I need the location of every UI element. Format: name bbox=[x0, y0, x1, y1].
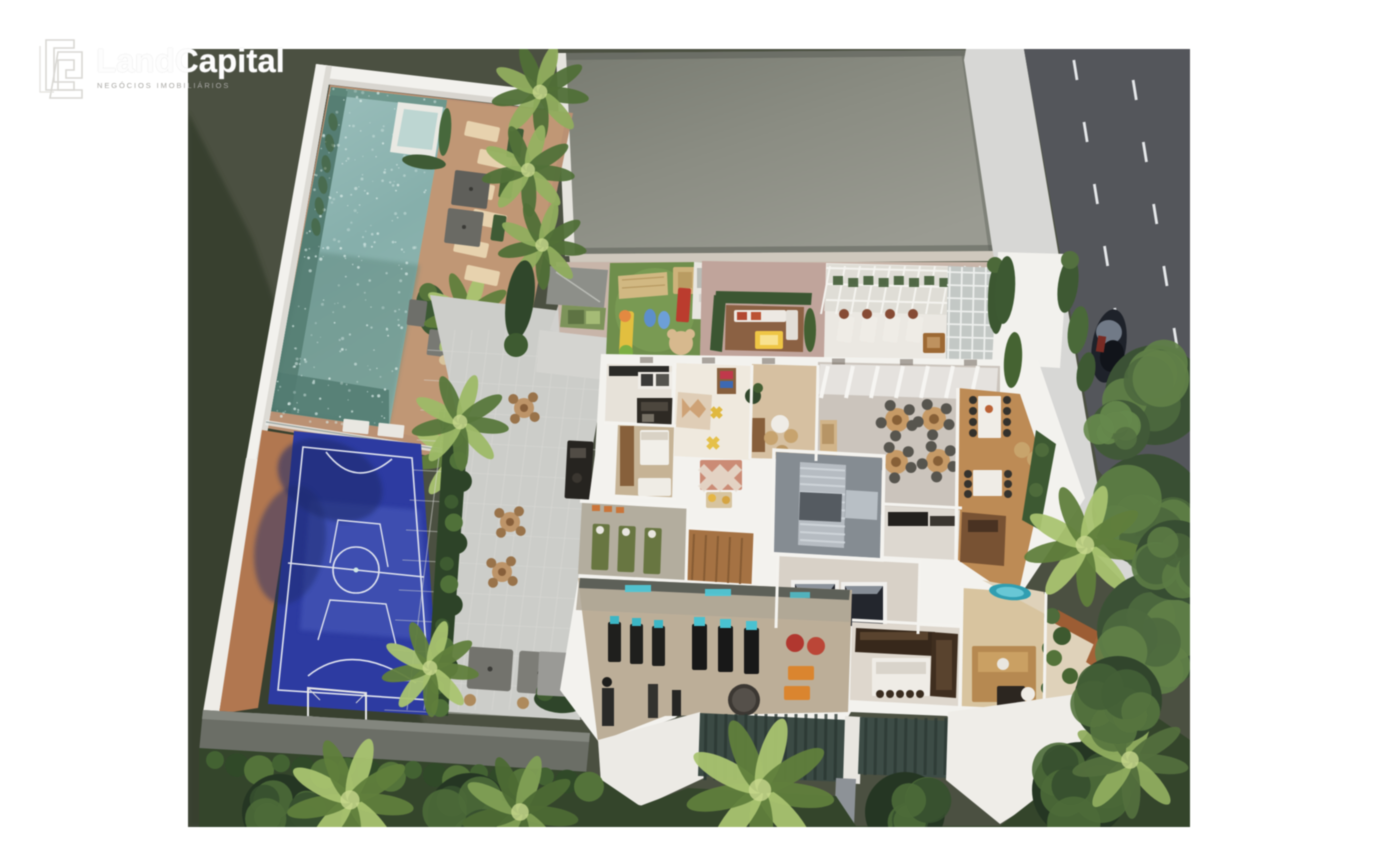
svg-text:NEGÓCIOS IMOBILIÁRIOS: NEGÓCIOS IMOBILIÁRIOS bbox=[97, 81, 230, 90]
svg-text:LandCapital: LandCapital bbox=[96, 42, 285, 79]
